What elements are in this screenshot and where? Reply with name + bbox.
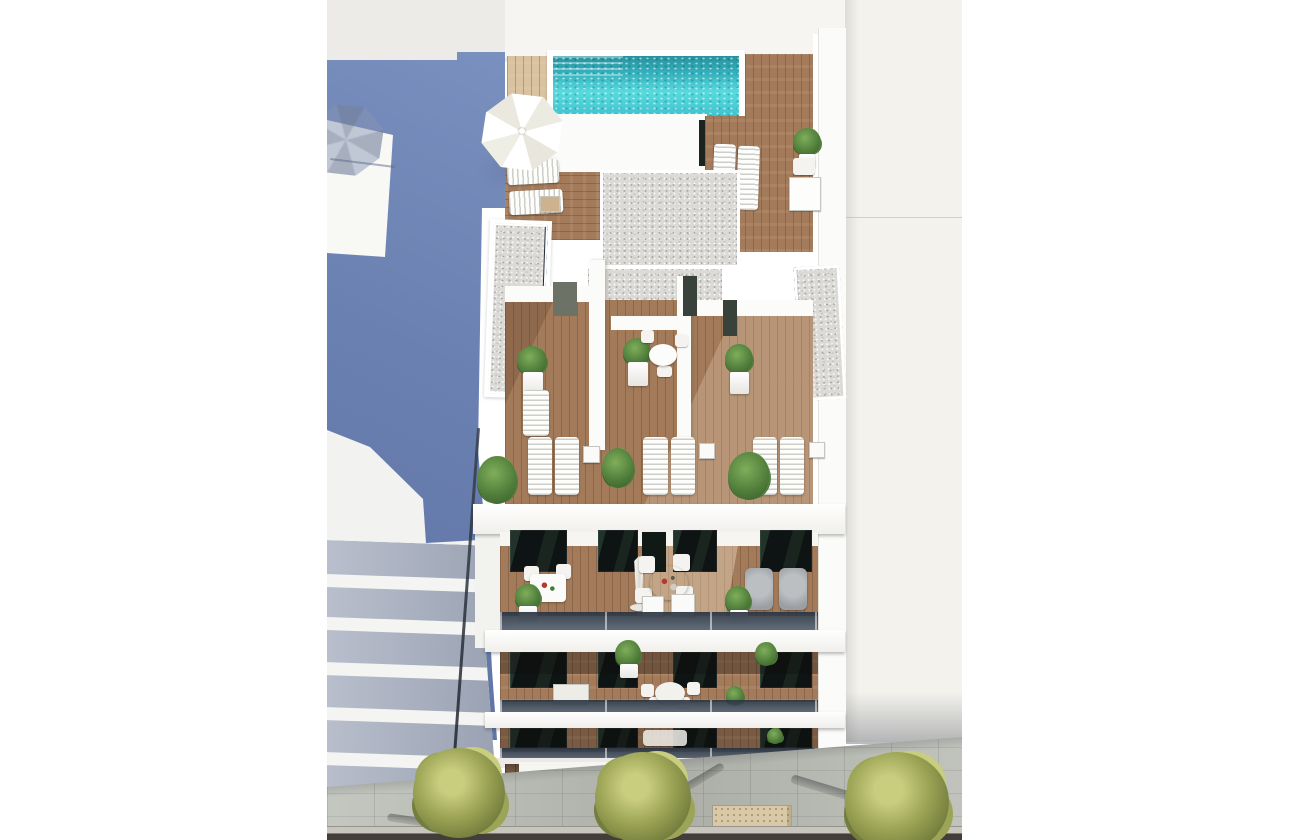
terrace-side-table (699, 443, 715, 459)
terrace-back-wall (691, 300, 813, 316)
plant-pot (730, 372, 749, 394)
corner-shrub (602, 448, 634, 488)
dining-chair (639, 556, 655, 573)
terrace-side-table (583, 446, 600, 463)
rooftop-pool (547, 50, 745, 122)
potted-plant (755, 642, 777, 666)
right-neighbor-base-shadow (845, 692, 962, 744)
render-area (327, 0, 962, 840)
pool-water (553, 56, 739, 116)
terrace-door (553, 282, 577, 316)
street-tree (413, 748, 505, 838)
right-neighbor-building (845, 0, 962, 742)
sun-lounger (671, 437, 695, 495)
terrace-side-table (809, 442, 825, 458)
terrace-door (723, 300, 737, 336)
parasol-hub (519, 128, 525, 134)
deck-chair (793, 158, 815, 175)
balcony-gap-shadow (327, 675, 502, 713)
window-opening (760, 530, 812, 572)
lounge-chair (523, 390, 549, 436)
sun-lounger (643, 437, 668, 495)
dining-chair (687, 682, 700, 695)
pool-deck-right (745, 54, 813, 120)
balcony1-glass-balustrade (500, 612, 818, 632)
gravel-roof-central (600, 170, 740, 268)
terrace-back-wall (611, 316, 681, 330)
terrace-chair (657, 366, 672, 377)
sun-lounger (555, 437, 579, 495)
plant-pot (628, 362, 648, 386)
lounge-armchair (779, 568, 807, 610)
terrace-table (649, 344, 677, 366)
deck-side-table (540, 196, 560, 212)
sun-lounger (780, 437, 804, 495)
corner-shrub (477, 456, 517, 504)
corner-shrub (728, 452, 770, 500)
window-opening (598, 530, 638, 572)
balcony1-slab (485, 630, 845, 652)
potted-plant (725, 344, 753, 374)
balcony3-chairs (643, 730, 687, 746)
balcony2-slab (485, 712, 845, 728)
sun-lounger (528, 437, 552, 495)
plant-pot (620, 664, 638, 678)
potted-plant (767, 728, 783, 744)
right-neighbor-edge-shadow (845, 0, 859, 742)
terrace-chair (641, 330, 654, 343)
architectural-render (0, 0, 1290, 840)
roof-stair-room (595, 114, 707, 172)
pool-steps (553, 56, 623, 76)
potted-plant (793, 128, 821, 156)
dining-chair (641, 684, 654, 697)
terrace-door (683, 276, 697, 316)
right-neighbor-roofline (845, 217, 962, 218)
street-tree (595, 752, 691, 840)
deck-table (789, 177, 821, 211)
terrace-chair (675, 334, 688, 347)
